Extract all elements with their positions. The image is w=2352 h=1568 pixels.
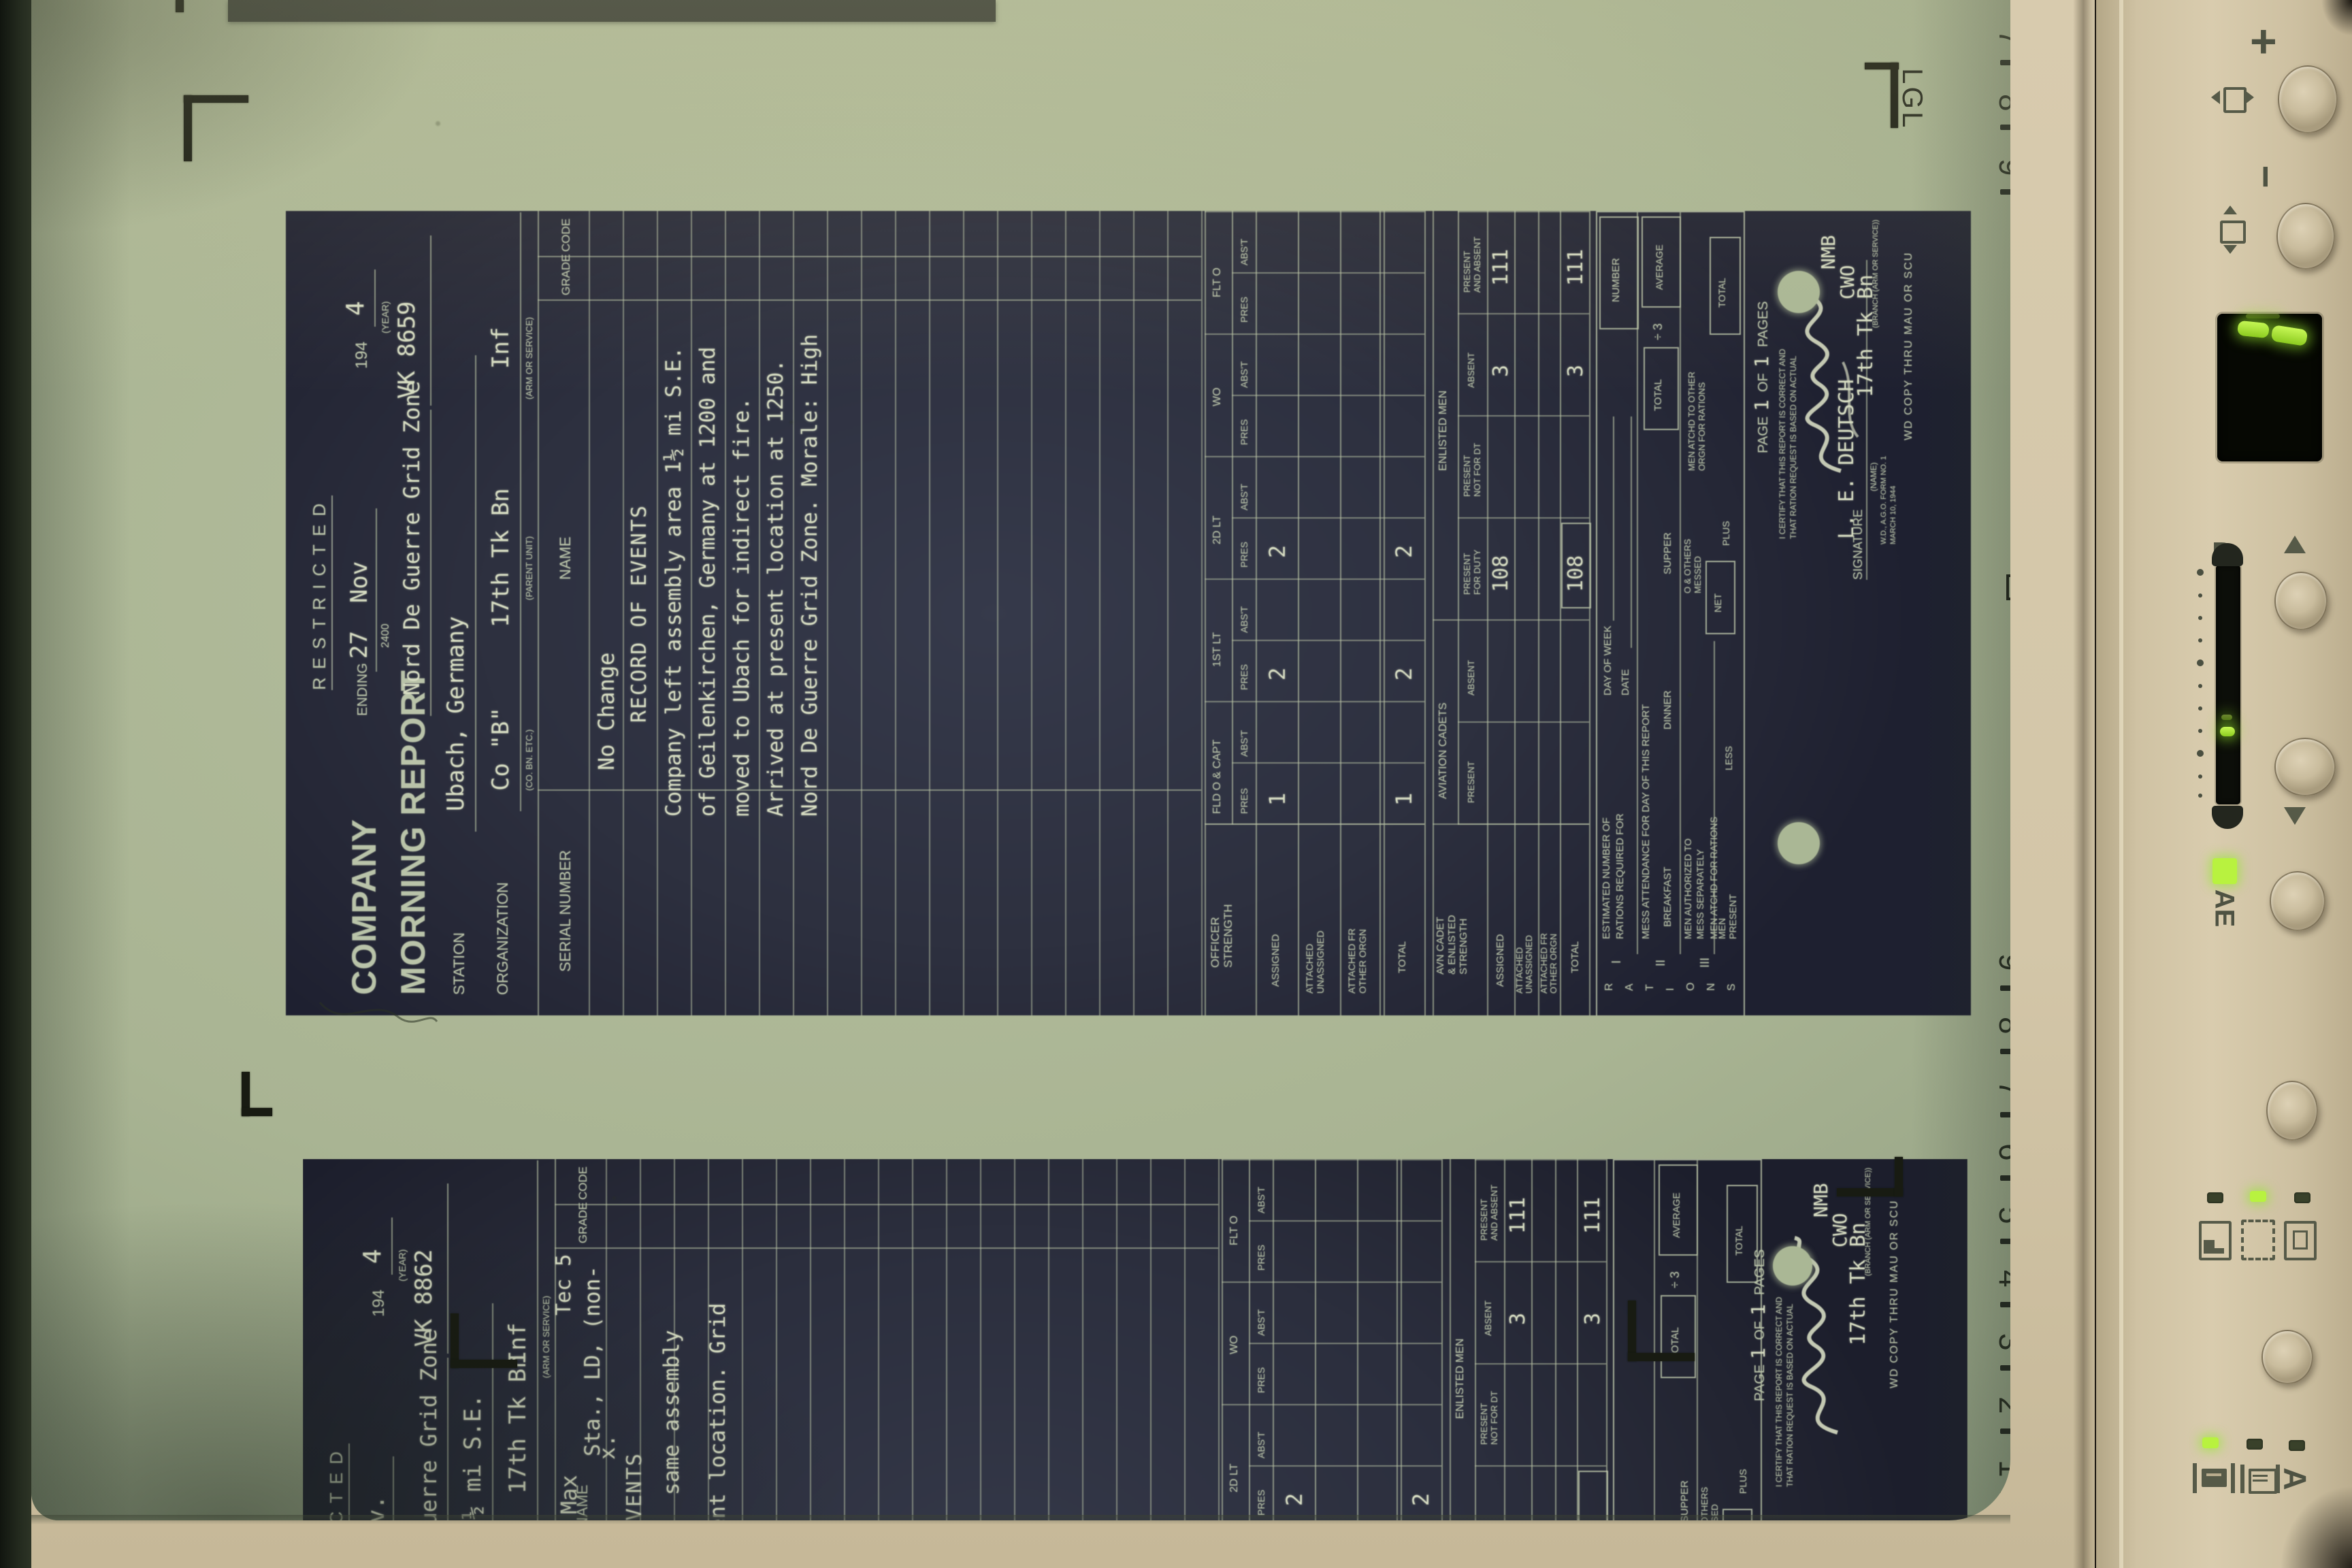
ending-underline xyxy=(393,1456,394,1520)
zoom-out-label: − xyxy=(2242,165,2288,189)
grade-column-line xyxy=(538,299,1201,301)
station-value: Ubach, Germany xyxy=(442,616,470,811)
strength-val: 111 xyxy=(1489,249,1513,286)
ending-label: ENDING xyxy=(355,663,371,716)
station-underline xyxy=(492,1303,493,1520)
officer-bottom xyxy=(1424,211,1426,1015)
density-scale-dot xyxy=(2197,659,2204,666)
morning-report-document-1: RESTRICTED COMPANY MORNING REPORT ENDING… xyxy=(286,211,1971,1015)
strength-label-line xyxy=(1433,823,1589,825)
abst-h: ABS'T xyxy=(1256,1432,1267,1458)
officer-row-line xyxy=(1357,1159,1358,1520)
density-scale-dot xyxy=(2198,794,2202,798)
corner-mark xyxy=(184,95,192,161)
less-label: LESS xyxy=(1723,746,1734,770)
name-header: NAME xyxy=(557,536,574,580)
strength-val: 111 xyxy=(1581,1197,1605,1234)
org-unit-value: 17th Tk Bn xyxy=(504,1354,532,1494)
page-label: PAGE xyxy=(1756,416,1771,453)
ruler-tick xyxy=(2000,1239,2010,1244)
total-label: TOTAL xyxy=(1652,379,1664,411)
ruler-number: 9 xyxy=(1992,159,2010,191)
row-att-fr: ATTACHED FR OTHER ORGN xyxy=(1539,933,1558,994)
officer-group: FLD O & CAPT xyxy=(1211,740,1224,814)
media-led xyxy=(2202,1437,2219,1448)
branch-paren-label: (BRANCH (ARM OR SERVICE)) xyxy=(1864,1168,1872,1276)
enlisted-men-label: ENLISTED MEN xyxy=(1454,1339,1467,1419)
officer-val: 2 xyxy=(1264,545,1290,558)
code-header: CODE xyxy=(576,1166,590,1200)
net-label: NET xyxy=(1712,593,1723,612)
ae-button[interactable] xyxy=(2270,871,2325,931)
officer-row-line xyxy=(1256,211,1257,1015)
officer-row-line xyxy=(1298,211,1299,1015)
officer-column-lines xyxy=(1249,1159,1441,1520)
dust-speck xyxy=(1688,693,1692,697)
pres-h: PRES xyxy=(1239,788,1249,814)
officer-row-line xyxy=(1315,1159,1316,1520)
station-value: ½ mi S.E. xyxy=(459,1394,487,1520)
grid-underline xyxy=(430,410,431,716)
pres-h: PRES xyxy=(1256,1367,1267,1393)
officer-val: 2 xyxy=(1264,668,1290,681)
ruler-number: 9 xyxy=(1992,953,2010,986)
day-of-week-label: DAY OF WEEK xyxy=(1602,625,1614,696)
ruler-tick xyxy=(2000,1302,2010,1307)
pages-num: 1 xyxy=(1750,356,1773,367)
panel-seam xyxy=(2073,0,2096,1568)
strength-column-lines xyxy=(1458,211,1589,825)
mask-mode-button[interactable] xyxy=(2266,1081,2318,1141)
officer-label-line xyxy=(1205,823,1424,825)
ruler-tick xyxy=(2000,1428,2010,1434)
div3-label: ÷ 3 xyxy=(1651,323,1665,340)
year-value: 4 xyxy=(359,1249,387,1264)
year-194-label: 194 xyxy=(353,342,372,369)
rations-div2 xyxy=(1697,1160,1698,1520)
ruler-tick xyxy=(2000,1492,2010,1497)
entry-x: x. xyxy=(595,1435,620,1460)
size-horizontal-icon xyxy=(2223,87,2247,113)
row-total: TOTAL xyxy=(1396,941,1408,973)
station-label: STATION xyxy=(451,932,468,995)
average-label: AVERAGE xyxy=(1671,1192,1682,1238)
strength-group-line xyxy=(1433,619,1458,621)
grid-underline xyxy=(447,1358,448,1520)
restricted-stamp: RESTRICTED xyxy=(326,1443,350,1520)
mess-attendance-label: MESS ATTENDANCE FOR DAY OF THIS REPORT xyxy=(1640,704,1652,939)
ruler-number: 4 xyxy=(1992,1270,2010,1303)
org-branch-value: Inf xyxy=(504,1323,532,1365)
page-num: 1 xyxy=(1747,1347,1769,1359)
serial-column-line xyxy=(538,789,1201,791)
arrow-left-icon xyxy=(2211,91,2220,104)
event-line: of Geilenkirchen, Germany at 1200 and xyxy=(696,346,720,817)
strength-row-line xyxy=(1504,1159,1505,1520)
form-date-label: MARCH 10, 1944 xyxy=(1889,486,1897,544)
arrow-right-icon xyxy=(2245,91,2254,104)
page-num: 1 xyxy=(1750,399,1773,411)
strength-val: 111 xyxy=(1506,1197,1530,1234)
ruler-number: 2 xyxy=(1992,1396,2010,1429)
strength-val: 3 xyxy=(1489,365,1513,377)
pres-h: PRES xyxy=(1256,1245,1267,1271)
pres-h: PRES xyxy=(1239,297,1249,323)
officer-bottom xyxy=(1441,1159,1443,1520)
ruler-tick xyxy=(2000,1175,2010,1181)
average-label: AVERAGE xyxy=(1654,244,1665,290)
entry-sta: Sta., LD, (non- xyxy=(581,1266,605,1456)
officer-group: FLT O xyxy=(1211,267,1224,297)
dow-line xyxy=(1613,416,1614,621)
ruler-number: 8 xyxy=(1992,94,2010,127)
entry-grade: Tec 5 xyxy=(552,1254,576,1316)
event-line: Nord De Guerre Grid Zone. Morale: High xyxy=(798,334,822,817)
abst-h: ABS'T xyxy=(1239,606,1249,633)
ruler-tick xyxy=(2000,1049,2010,1054)
mask-led xyxy=(2207,1192,2223,1203)
hour-2400-label: 2400 xyxy=(380,623,392,648)
density-scale-dot xyxy=(2198,593,2202,598)
pages-label: PAGES xyxy=(1752,1249,1768,1295)
officer-row-line xyxy=(1340,211,1341,1015)
arrow-up-icon xyxy=(2223,206,2237,214)
date-line xyxy=(1631,416,1632,648)
typed-initials: NMB xyxy=(1810,1183,1832,1218)
rations-div2 xyxy=(1680,212,1681,954)
pages-num: 1 xyxy=(1747,1304,1769,1316)
photo-corner-shadow xyxy=(2311,0,2352,48)
org-sub-arm: (ARM OR SERVICE) xyxy=(541,1296,551,1378)
entry-no-change: No Change xyxy=(593,653,619,770)
year-194-label: 194 xyxy=(370,1290,389,1317)
page-label: PAGE xyxy=(1752,1365,1768,1401)
serial-number-header: SERIAL NUMBER xyxy=(557,850,574,972)
entry-location: present location. Grid xyxy=(706,1303,730,1520)
ruler-tick xyxy=(2000,1365,2010,1371)
entry-assembly: same assembly xyxy=(659,1330,684,1495)
abst-h: ABS'T xyxy=(1239,361,1249,388)
year-paren-label: (YEAR) xyxy=(397,1249,408,1281)
total-pfd-box xyxy=(1578,1471,1608,1520)
restricted-stamp: RESTRICTED xyxy=(309,495,333,690)
density-scale-dot xyxy=(2198,684,2202,688)
event-line: moved to Ubach for indirect fire. xyxy=(730,397,754,817)
mask-led xyxy=(2294,1192,2310,1203)
officer-val: 2 xyxy=(1281,1493,1307,1506)
roman-3: III xyxy=(1698,958,1712,968)
code-header: CODE xyxy=(559,218,573,252)
ruler-tick xyxy=(2000,985,2010,991)
officer-subline xyxy=(1249,1159,1250,1520)
officer-group: WO xyxy=(1211,387,1224,406)
reader-left-edge xyxy=(0,0,31,1568)
branch-paren-label: (BRANCH (ARM OR SERVICE)) xyxy=(1872,220,1880,328)
morning-report-frame-1: RESTRICTED COMPANY MORNING REPORT ENDING… xyxy=(286,211,1971,1015)
rations-side-label: R A T I O N S xyxy=(1599,983,1742,991)
copy-note-label: WD COPY THRU MAU OR SCU xyxy=(1903,252,1915,440)
org-sub-co: (CO. BN. ETC.) xyxy=(524,730,534,791)
morning-report-frame-2: RESTRICTED ENDING 26 Nov. 194 4 (YEAR) N… xyxy=(303,1159,1967,1520)
strength-val: 3 xyxy=(1506,1313,1530,1325)
strength-subline xyxy=(1475,1159,1476,1520)
corner-mark xyxy=(242,1108,272,1116)
ruler-number: 1 xyxy=(1992,1460,2010,1492)
row-att-fr: ATTACHED FR OTHER ORGN xyxy=(1346,928,1368,994)
year-paren-label: (YEAR) xyxy=(380,301,391,333)
typed-name: L. E. DEUTSCH xyxy=(1835,379,1859,539)
roster-top-line xyxy=(555,1159,556,1520)
officer-column-lines xyxy=(1232,211,1424,825)
plus-label: PLUS xyxy=(1737,1469,1748,1494)
est-rations-2: RATIONS REQUIRED FOR xyxy=(1614,813,1626,939)
officer-group: WO xyxy=(1228,1335,1241,1354)
strength-val: 108 xyxy=(1489,555,1513,592)
plus-label: PLUS xyxy=(1720,521,1731,546)
corner-mark xyxy=(1628,1353,1695,1361)
pres-h: PRES xyxy=(1239,419,1249,445)
density-slider[interactable] xyxy=(2216,565,2240,804)
abst-h: ABS'T xyxy=(1239,484,1249,510)
zoom-in-label: + xyxy=(2250,15,2277,68)
legal-size-label: LGL xyxy=(1896,68,1929,130)
org-sub-unit: (PARENT UNIT) xyxy=(524,536,534,600)
roster-rule-lines xyxy=(606,1159,1222,1520)
microfilm-icon xyxy=(2193,1463,2235,1493)
edge-tick-mark xyxy=(176,0,184,12)
media-led xyxy=(2289,1440,2305,1451)
code-column-line xyxy=(538,256,1201,257)
abst-h: ABS'T xyxy=(1256,1309,1267,1336)
officer-val: 2 xyxy=(1391,668,1417,681)
display-digit-segment xyxy=(2270,325,2308,346)
strength-bottom xyxy=(1606,1159,1607,1520)
col-h: ABSENT xyxy=(1466,660,1476,696)
year-underline xyxy=(374,269,376,327)
ruler-number: 7 xyxy=(1992,29,2010,62)
officer-val: 1 xyxy=(1264,793,1290,806)
officer-group: 1ST LT xyxy=(1211,632,1224,667)
breakfast-label: BREAKFAST xyxy=(1662,867,1673,927)
mask-window-icon xyxy=(2284,1221,2317,1260)
rations-div1 xyxy=(1654,1160,1655,1520)
others-messed-label: O & OTHERS MESSED xyxy=(1682,539,1703,593)
event-line: Arrived at present location at 1250. xyxy=(764,359,788,817)
strength-total-line xyxy=(1577,1159,1578,1520)
form-id-label: W.D., A.G.O. FORM NO. 1 xyxy=(1880,456,1888,544)
density-indicator-dim xyxy=(2221,715,2232,720)
strength-row-line xyxy=(1514,211,1516,1015)
officer-val: 1 xyxy=(1391,793,1417,806)
officer-row-line xyxy=(1273,1159,1274,1520)
magnification-display xyxy=(2217,314,2322,461)
org-unit-value: 17th Tk Bn xyxy=(487,488,514,627)
center-position-icon xyxy=(2006,569,2010,600)
officer-total-line2 xyxy=(1401,1159,1402,1520)
number-label: NUMBER xyxy=(1610,258,1622,302)
corner-mark xyxy=(1837,1188,1903,1196)
div3-label: ÷ 3 xyxy=(1668,1271,1682,1288)
ending-underline xyxy=(376,508,377,672)
density-down-icon xyxy=(2284,807,2306,825)
ruler-number: 7 xyxy=(1992,1080,2010,1113)
row-assigned: ASSIGNED xyxy=(1270,934,1281,987)
officer-corner-label: OFFICER STRENGTH xyxy=(1209,904,1235,968)
ae-label: AE xyxy=(2208,889,2239,928)
strength-val: 111 xyxy=(1564,249,1588,286)
dinner-label: DINNER xyxy=(1662,690,1673,730)
strength-val: 3 xyxy=(1581,1313,1605,1325)
supper-label: SUPPER xyxy=(1662,532,1673,574)
display-digit-segment xyxy=(2246,314,2280,318)
punch-hole xyxy=(1773,1246,1812,1286)
station-underline xyxy=(475,355,476,832)
mask-corner-icon xyxy=(2199,1221,2232,1260)
grid-ref-value: VK 8659 xyxy=(393,301,421,399)
strength-val: 108 xyxy=(1564,555,1588,592)
roman-2: II xyxy=(1654,960,1668,966)
col-h: ABSENT xyxy=(1466,353,1476,388)
size-vertical-icon xyxy=(2220,220,2246,244)
density-up-button[interactable] xyxy=(2274,572,2327,630)
record-of-events-title: RECORD OF EVENTS xyxy=(627,504,651,723)
microfilm-reader-photo: { "screen": { "lgl": "LGL", "ruler_top":… xyxy=(0,0,2352,1568)
rations-total-label: TOTAL xyxy=(1733,1226,1744,1256)
rations-total-label: TOTAL xyxy=(1716,278,1727,308)
row-assigned: ASSIGNED xyxy=(1494,934,1506,987)
col-h: PRESENT AND ABSENT xyxy=(1462,237,1482,293)
strength-row-line xyxy=(1487,211,1488,1015)
density-scale-dot xyxy=(2197,569,2204,576)
col-h: ABSENT xyxy=(1483,1301,1493,1336)
typed-initials: NMB xyxy=(1817,235,1840,269)
strength-subline xyxy=(1458,211,1459,825)
roman-1: I xyxy=(1610,960,1624,964)
ruler-number: 8 xyxy=(1992,1017,2010,1049)
est-rations-1: ESTIMATED NUMBER OF xyxy=(1601,817,1612,939)
ruler-number: 5 xyxy=(1992,1207,2010,1239)
event-line: Company left assembly area 1½ mi S.E. xyxy=(661,346,686,817)
grade-header: GRADE xyxy=(576,1203,590,1243)
corner-mark xyxy=(1628,1301,1636,1361)
row-att-unasg: ATTACHED UNASSIGNED xyxy=(1304,930,1326,994)
auth-mess-2: MESS SEPARATELY xyxy=(1695,849,1705,939)
ruler-number: 3 xyxy=(1992,1333,2010,1366)
density-indicator xyxy=(2220,727,2235,736)
row-total: TOTAL xyxy=(1569,941,1581,973)
officer-group: FLT O xyxy=(1228,1215,1241,1245)
grid-zone-value: Nord De Guerre Grid Zone xyxy=(399,381,425,696)
col-h: PRESENT xyxy=(1466,762,1476,803)
corner-mark xyxy=(451,1360,517,1368)
col-h: PRESENT NOT FOR DT xyxy=(1479,1391,1499,1445)
copy-note-label: WD COPY THRU MAU OR SCU xyxy=(1889,1200,1901,1388)
film-thread xyxy=(317,990,440,1038)
grade-header: GRADE xyxy=(559,255,573,295)
officer-total-line2 xyxy=(1384,211,1385,1015)
dust-speck xyxy=(436,121,440,126)
form-title-morning-report: MORNING REPORT xyxy=(393,670,433,995)
projection-screen: RESTRICTED COMPANY MORNING REPORT ENDING… xyxy=(31,0,2010,1520)
atchd-other-orgn-label: MEN ATCHD TO OTHER ORGN FOR RATIONS xyxy=(1686,372,1707,471)
strength-total-line xyxy=(1560,211,1561,1015)
density-scale-dot xyxy=(2198,729,2202,733)
name-paren-label: (NAME) xyxy=(1869,462,1878,491)
morning-report-document-2: RESTRICTED ENDING 26 Nov. 194 4 (YEAR) N… xyxy=(303,1159,1967,1520)
pages-label: PAGES xyxy=(1756,301,1771,347)
display-digit-segment xyxy=(2237,321,2270,339)
typed-rank: CWO xyxy=(1829,1213,1851,1247)
grid-ref-underline xyxy=(430,235,431,406)
col-h: PRESENT NOT FOR DT xyxy=(1462,443,1482,497)
corner-mark xyxy=(1895,1157,1903,1196)
ruler-tick xyxy=(2000,1112,2010,1117)
dust-speck xyxy=(612,1196,616,1200)
density-up-icon xyxy=(2284,536,2306,553)
org-company-value: Co "B" xyxy=(487,707,514,791)
ruler-number: 6 xyxy=(1992,1143,2010,1176)
entry-name: Max xyxy=(556,1475,582,1514)
media-mode-button[interactable] xyxy=(2261,1330,2313,1384)
year-underline xyxy=(391,1218,393,1275)
punch-hole xyxy=(1778,822,1820,864)
officer-subline xyxy=(1232,211,1233,825)
of-label: OF xyxy=(1756,373,1771,392)
abst-h: ABS'T xyxy=(1239,730,1249,757)
arrow-down-icon xyxy=(2223,245,2237,254)
officer-val: 2 xyxy=(1391,545,1417,558)
strength-row-line xyxy=(1555,1159,1556,1520)
grid-zone-value: Nord De Guerre Grid Zone xyxy=(416,1329,442,1520)
officer-total-line xyxy=(1396,1159,1398,1520)
organization-label: ORGANIZATION xyxy=(494,882,512,995)
form-title-company: COMPANY xyxy=(344,819,384,995)
zoom-out-button[interactable] xyxy=(2276,203,2335,269)
punch-hole xyxy=(1778,271,1820,313)
density-scale-dot xyxy=(2198,706,2202,710)
of-label: OF xyxy=(1752,1321,1768,1340)
mask-led xyxy=(2250,1191,2266,1202)
rations-div1 xyxy=(1637,212,1638,954)
org-underline xyxy=(520,212,521,811)
abst-h: ABS'T xyxy=(1256,1187,1267,1213)
strength-top xyxy=(1450,1159,1451,1520)
density-scale-dot xyxy=(2198,638,2202,642)
officer-val: 2 xyxy=(1408,1493,1434,1506)
officer-group: 2D LT xyxy=(1228,1464,1241,1492)
photo-corner-shadow xyxy=(2257,1459,2352,1568)
ending-date-value: 27 Nov xyxy=(346,561,373,659)
org-branch-value: Inf xyxy=(487,327,514,369)
media-led xyxy=(2247,1439,2263,1450)
grid-ref-value: VK 8862 xyxy=(410,1249,438,1347)
aviation-cadets-label: AVIATION CADETS xyxy=(1437,702,1450,799)
grid-ref-underline xyxy=(447,1183,448,1354)
code-column-line xyxy=(555,1204,1218,1205)
grade-column-line xyxy=(555,1247,1218,1249)
strength-row-line xyxy=(1531,1159,1533,1520)
year-value: 4 xyxy=(342,301,370,316)
typed-rank: CWO xyxy=(1836,265,1859,299)
strength-corner-label: AVN CADET & ENLISTED STRENGTH xyxy=(1435,915,1469,975)
officer-total-line xyxy=(1379,211,1381,1015)
abst-h: ABS'T xyxy=(1239,239,1249,265)
screen-bottom-shadow xyxy=(31,1515,2010,1524)
org-underline xyxy=(537,1160,538,1520)
density-mid-button[interactable] xyxy=(2274,738,2336,796)
zoom-in-button[interactable] xyxy=(2278,65,2338,133)
pres-h: PRES xyxy=(1256,1490,1267,1516)
